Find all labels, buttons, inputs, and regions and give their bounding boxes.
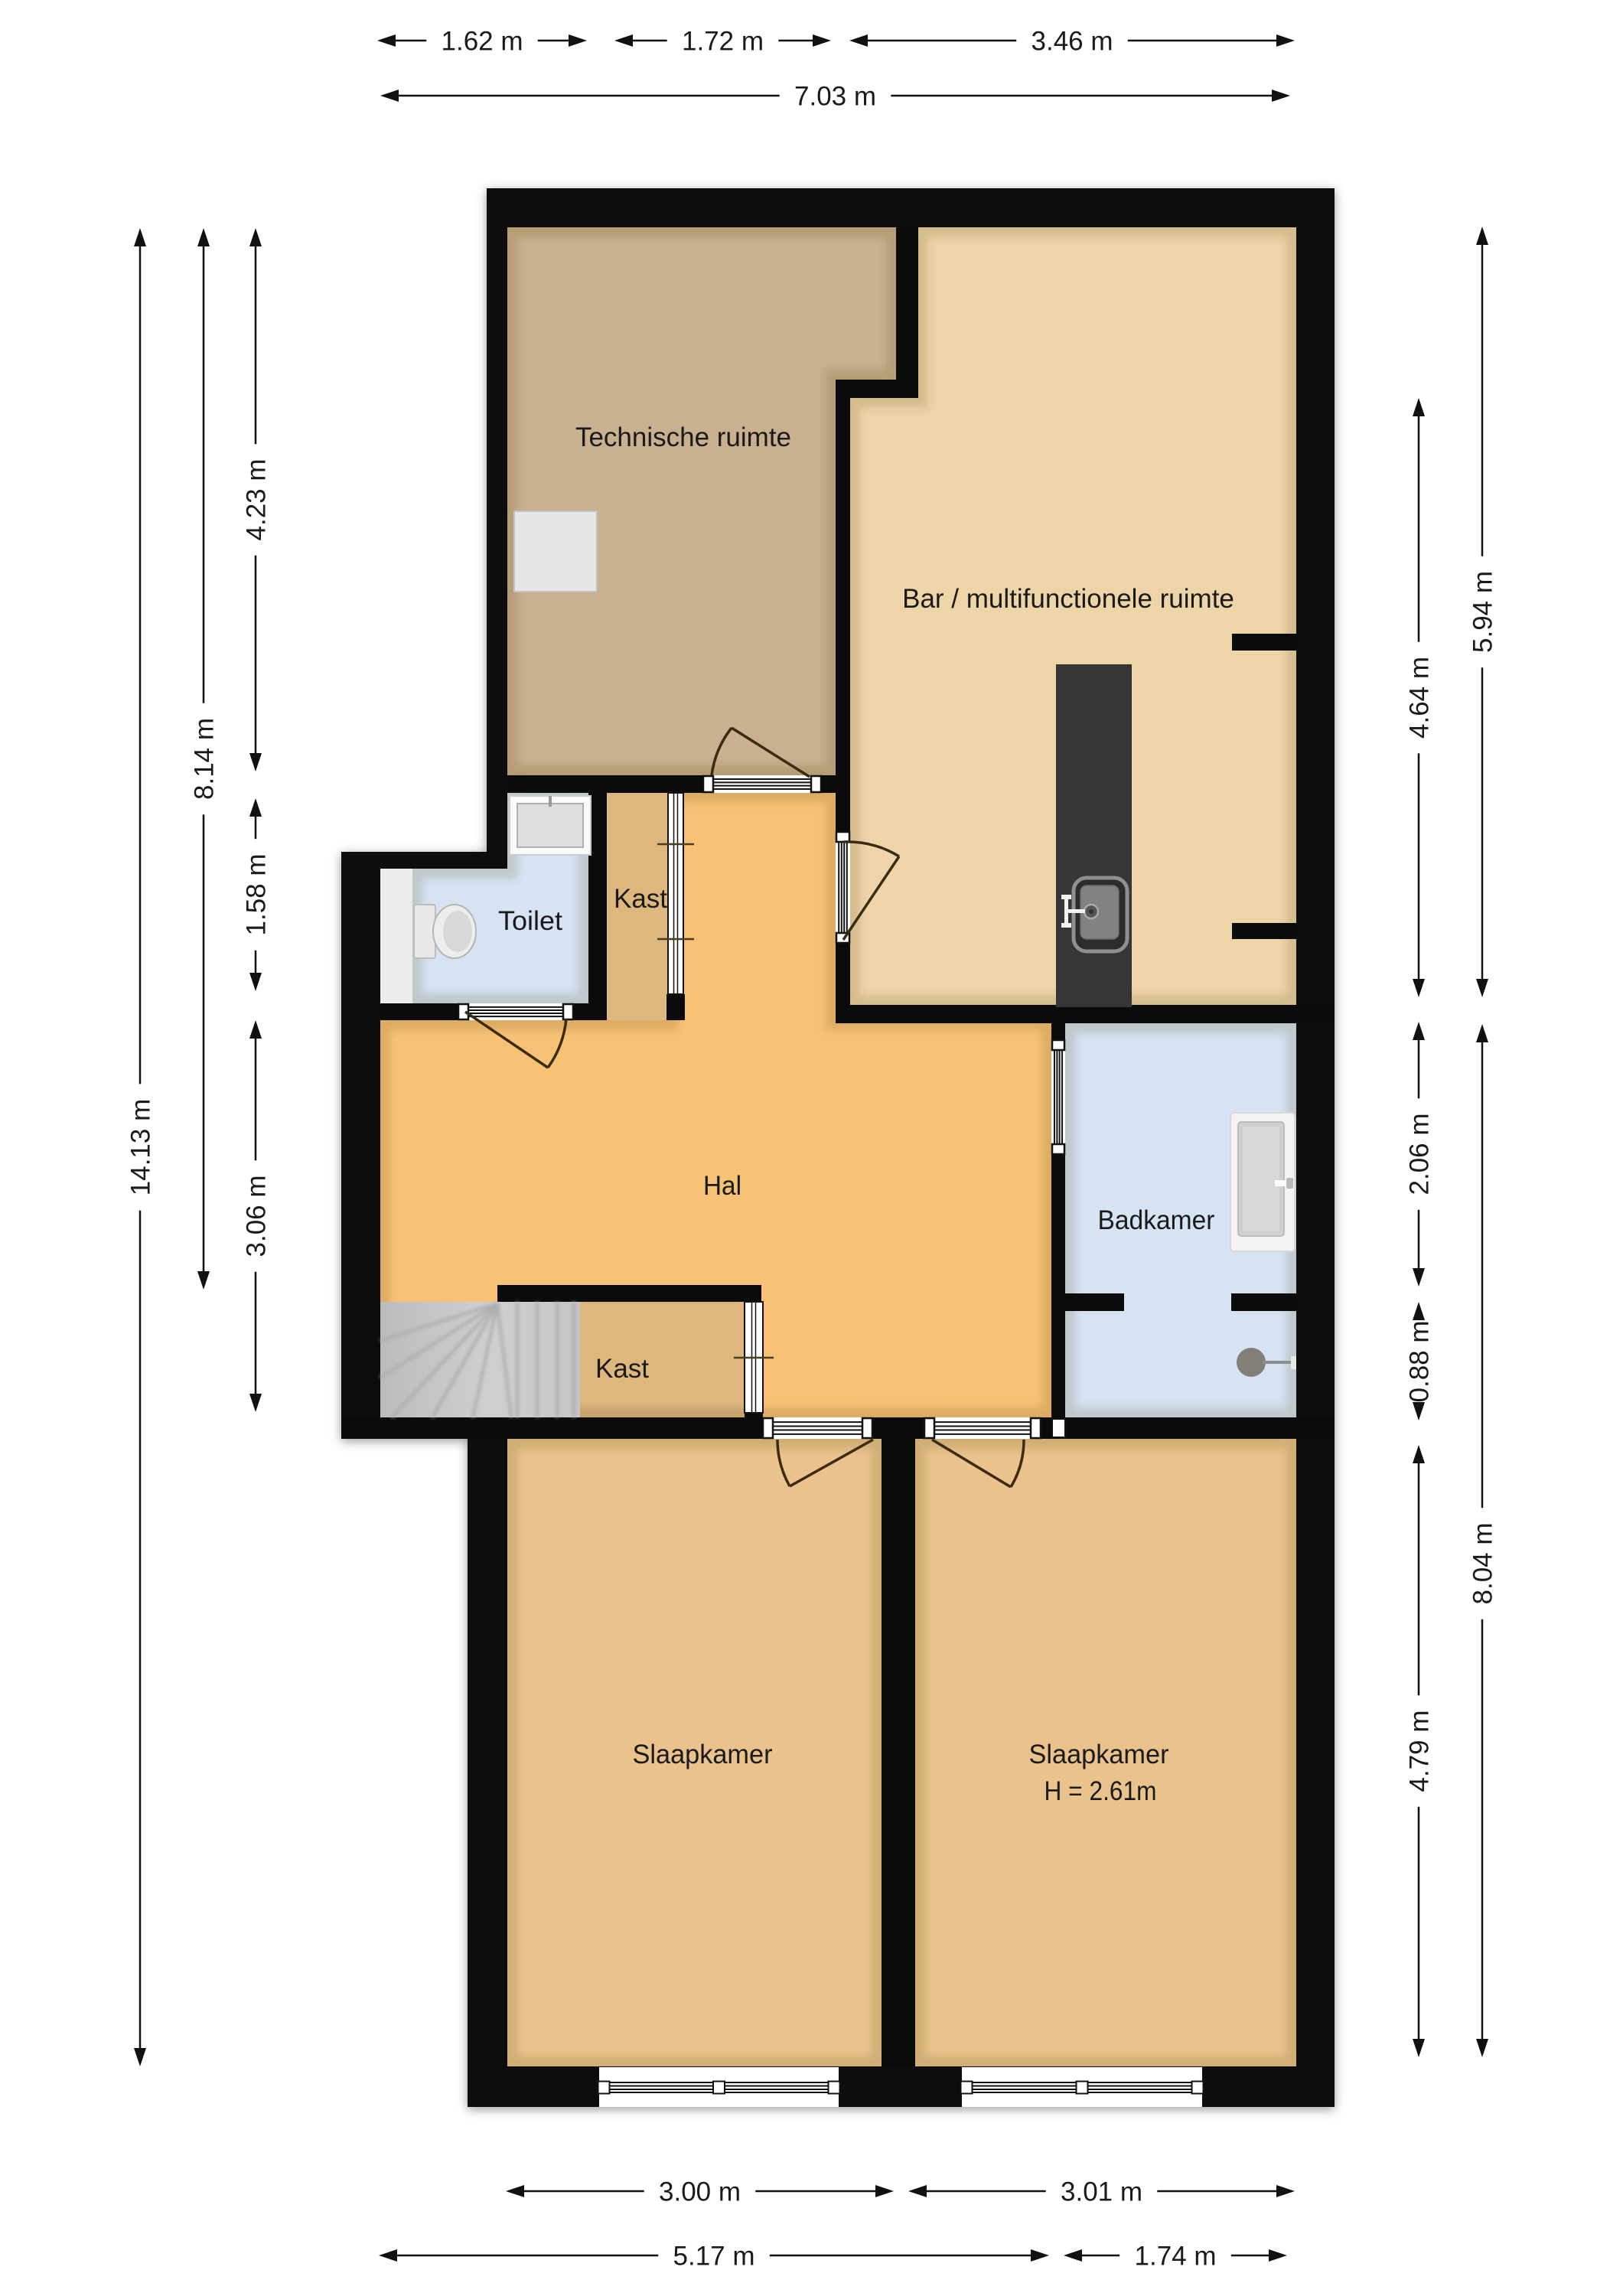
svg-text:3.06 m: 3.06 m (242, 1176, 272, 1257)
svg-text:3.00 m: 3.00 m (659, 2177, 741, 2207)
svg-text:Toilet: Toilet (498, 906, 562, 936)
svg-text:Hal: Hal (703, 1171, 741, 1201)
svg-text:3.01 m: 3.01 m (1061, 2177, 1142, 2207)
svg-text:Bar / multifunctionele ruimte: Bar / multifunctionele ruimte (902, 584, 1234, 614)
svg-text:1.74 m: 1.74 m (1135, 2242, 1217, 2272)
svg-text:Slaapkamer: Slaapkamer (633, 1740, 773, 1769)
svg-text:8.14 m: 8.14 m (190, 718, 220, 800)
svg-text:4.23 m: 4.23 m (242, 459, 272, 541)
svg-text:14.13 m: 14.13 m (126, 1099, 156, 1195)
svg-text:Badkamer: Badkamer (1098, 1205, 1215, 1235)
svg-text:2.06 m: 2.06 m (1405, 1114, 1435, 1195)
svg-text:1.62 m: 1.62 m (442, 27, 523, 57)
svg-text:Kast: Kast (595, 1354, 649, 1384)
svg-text:H = 2.61m: H = 2.61m (1045, 1776, 1157, 1806)
svg-text:1.58 m: 1.58 m (242, 854, 272, 936)
svg-text:3.46 m: 3.46 m (1031, 27, 1113, 57)
svg-text:5.17 m: 5.17 m (673, 2242, 755, 2272)
svg-text:Kast: Kast (614, 884, 667, 914)
svg-text:4.79 m: 4.79 m (1405, 1711, 1435, 1792)
svg-text:8.04 m: 8.04 m (1468, 1523, 1498, 1605)
svg-text:7.03 m: 7.03 m (794, 82, 876, 112)
svg-text:Technische ruimte: Technische ruimte (575, 422, 791, 452)
svg-text:1.72 m: 1.72 m (682, 27, 764, 57)
svg-text:4.64 m: 4.64 m (1405, 657, 1435, 739)
svg-text:5.94 m: 5.94 m (1468, 571, 1498, 653)
svg-text:Slaapkamer: Slaapkamer (1029, 1740, 1169, 1769)
svg-text:0.88 m: 0.88 m (1405, 1321, 1435, 1403)
